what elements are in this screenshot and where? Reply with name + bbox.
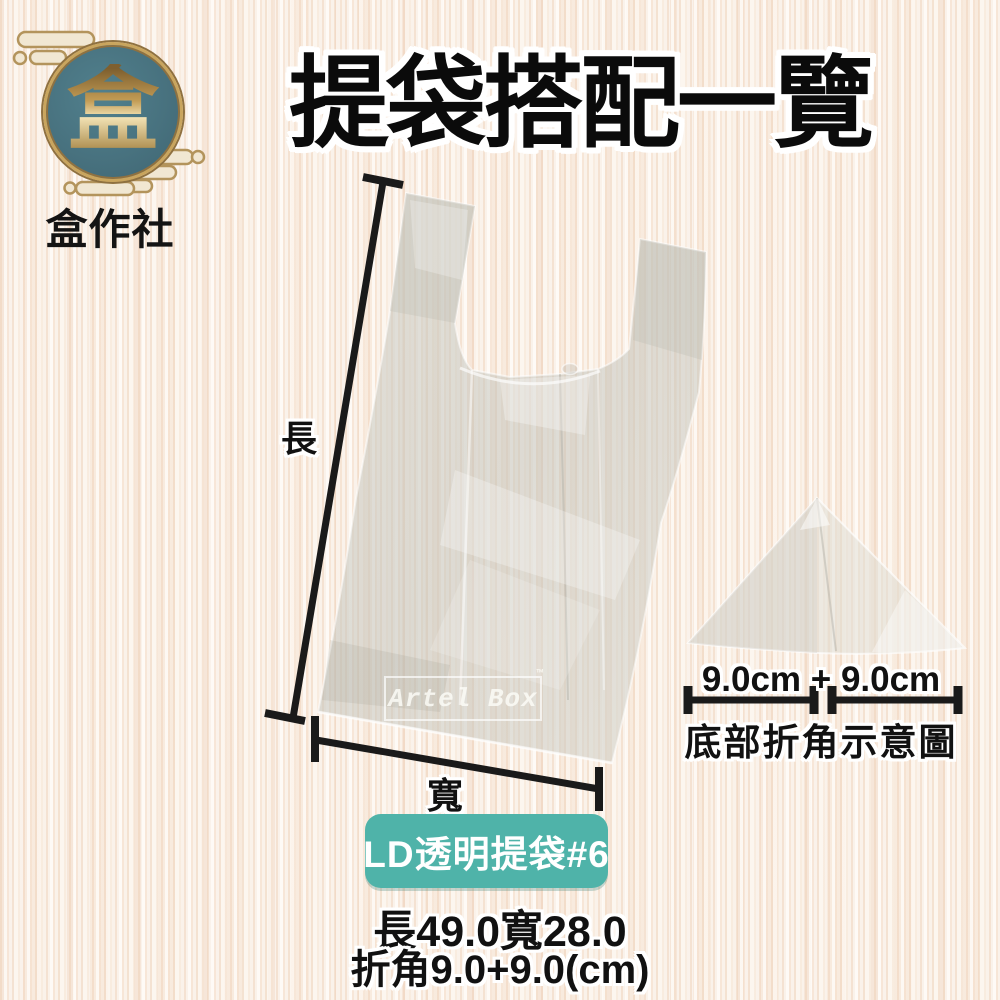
brand-name: 盒作社 bbox=[36, 196, 184, 257]
fold-measurement-text: 9.0cm + 9.0cm bbox=[671, 660, 971, 700]
length-label: 長 bbox=[281, 410, 317, 462]
product-infographic: 盒 盒作社 提袋搭配一覽 長 寬 Artel Box ™ 9.0cm + 9.0… bbox=[0, 0, 1000, 1000]
product-badge: LD透明提袋#6 bbox=[365, 814, 608, 888]
product-badge-text: LD透明提袋#6 bbox=[363, 824, 609, 878]
watermark-text: Artel Box bbox=[388, 684, 537, 714]
trademark-symbol: ™ bbox=[536, 669, 544, 681]
brand-logo-glyph: 盒 bbox=[67, 64, 159, 156]
fold-corner-photo bbox=[688, 498, 965, 654]
spec-fold: 折角9.0+9.0(cm) bbox=[250, 937, 750, 995]
brand-logo: 盒 bbox=[43, 42, 183, 182]
watermark: Artel Box ™ bbox=[384, 676, 542, 721]
page-title: 提袋搭配一覽 bbox=[278, 52, 882, 156]
width-label: 寬 bbox=[427, 767, 463, 819]
fold-caption: 底部折角示意圖 bbox=[671, 712, 971, 766]
